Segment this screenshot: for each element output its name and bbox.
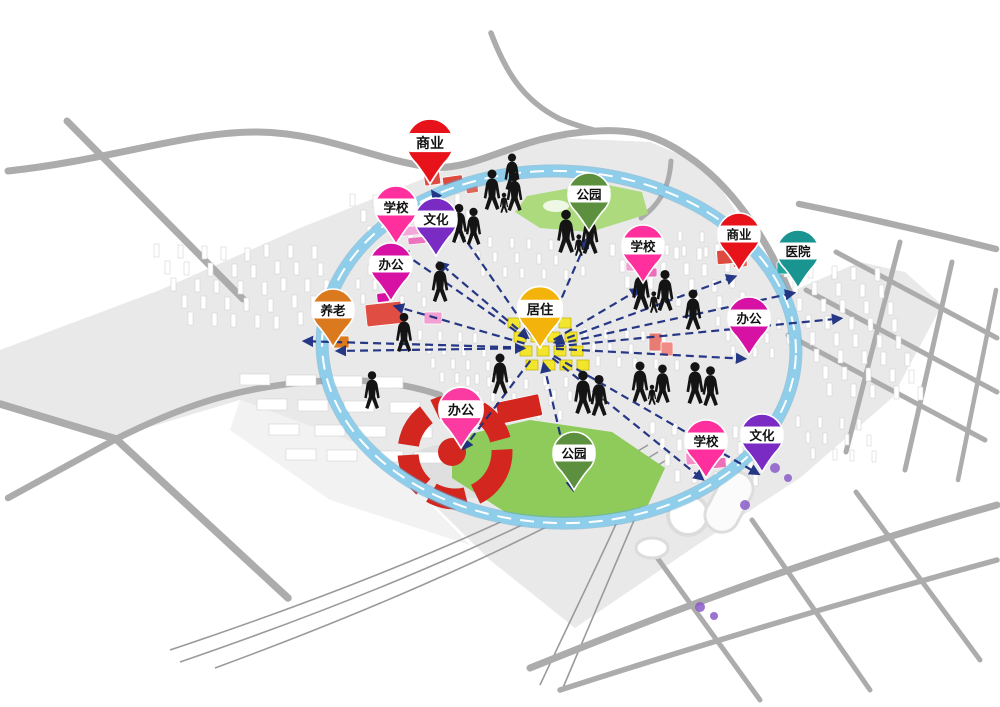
pin-label: 医院 xyxy=(785,244,811,259)
pin-label: 学校 xyxy=(383,200,409,215)
pin-label: 办公 xyxy=(378,257,404,272)
pin-label: 商业 xyxy=(726,227,752,242)
pin-label: 文化 xyxy=(749,428,775,443)
pin-label: 办公 xyxy=(448,401,475,418)
pin-label: 公园 xyxy=(561,446,586,461)
masterplan-diagram: 商业学校文化办公养老公园学校商业医院居住办公办公公园学校文化 xyxy=(0,0,1000,707)
pin-label: 学校 xyxy=(693,434,719,449)
pin-label: 养老 xyxy=(319,303,346,318)
pin-label: 文化 xyxy=(423,212,449,227)
city-masterplan-svg: 商业学校文化办公养老公园学校商业医院居住办公办公公园学校文化 xyxy=(0,0,1000,707)
pin-label: 居住 xyxy=(527,301,553,318)
pin-label: 商业 xyxy=(416,135,444,152)
pin-label: 学校 xyxy=(630,239,656,254)
pin-label: 办公 xyxy=(736,311,762,326)
pin-label: 公园 xyxy=(576,187,601,202)
